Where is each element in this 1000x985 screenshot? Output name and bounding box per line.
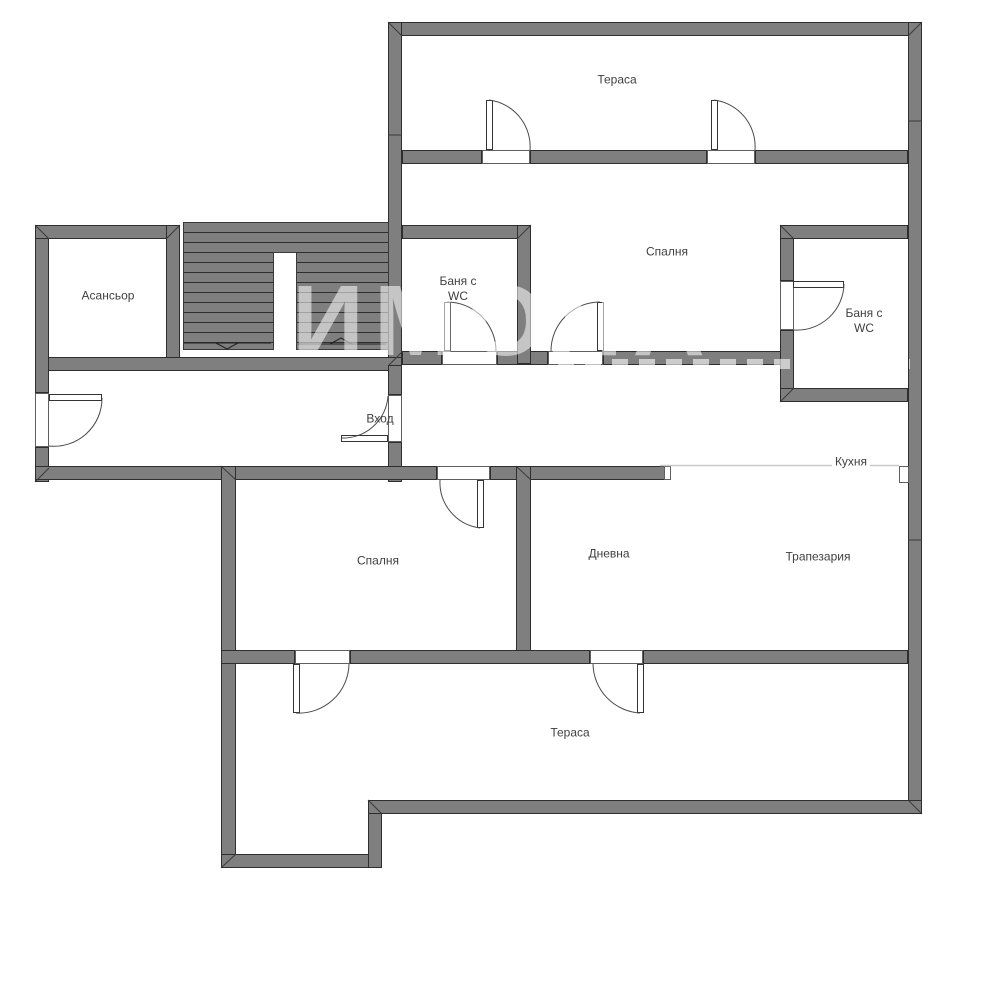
wall-corner-miter [388,22,402,36]
wall-corner-miter [780,388,794,402]
room-label-kitchen: Кухня [832,455,870,470]
door-swing-arc [489,100,530,150]
wall-corner-miter [368,800,382,814]
wall-corner-miter [517,225,531,239]
room-label-bath-wc-left: Баня с WC [439,274,476,304]
door-swing-arc [296,664,349,713]
stair-direction-arrow [184,343,271,349]
wall-corner-miter [780,225,794,239]
door-swing-arc [551,302,600,351]
door-swing-arc [593,664,640,713]
room-label-bedroom-top: Спалня [646,245,688,260]
room-label-dining-room: Трапезария [786,550,851,565]
wall-corner-miter [221,854,236,868]
door-swing-arc [794,284,844,330]
wall-corner-miter [516,466,531,480]
wall-corner-miter [908,22,922,36]
room-label-living-room: Дневна [588,547,629,562]
room-label-bath-wc-right: Баня с WC [845,306,882,336]
room-label-terrace-bottom: Тераса [550,726,589,741]
door-swing-arc [447,302,496,351]
wall-corner-miter [221,466,236,480]
wall-corner-miter [35,225,49,239]
door-swing-arc [440,480,480,528]
wall-corner-miter [389,351,403,365]
room-label-bedroom-bottom: Спалня [357,554,399,569]
room-label-elevator: Асансьор [82,289,135,304]
wall-corner-miter [35,468,49,482]
room-label-terrace-top: Тераса [597,73,636,88]
stair-direction-arrow [298,338,386,344]
door-swing-arc [49,398,102,446]
floor-plan: ИМОЛА ТерасаАсансьорБаня с WCСпалняБаня … [0,0,1000,985]
plan-overlay-svg [0,0,1000,985]
room-label-entrance: Вход [366,412,393,427]
wall-corner-miter [166,225,180,239]
door-swing-arc [714,100,755,150]
wall-corner-miter [908,800,922,814]
